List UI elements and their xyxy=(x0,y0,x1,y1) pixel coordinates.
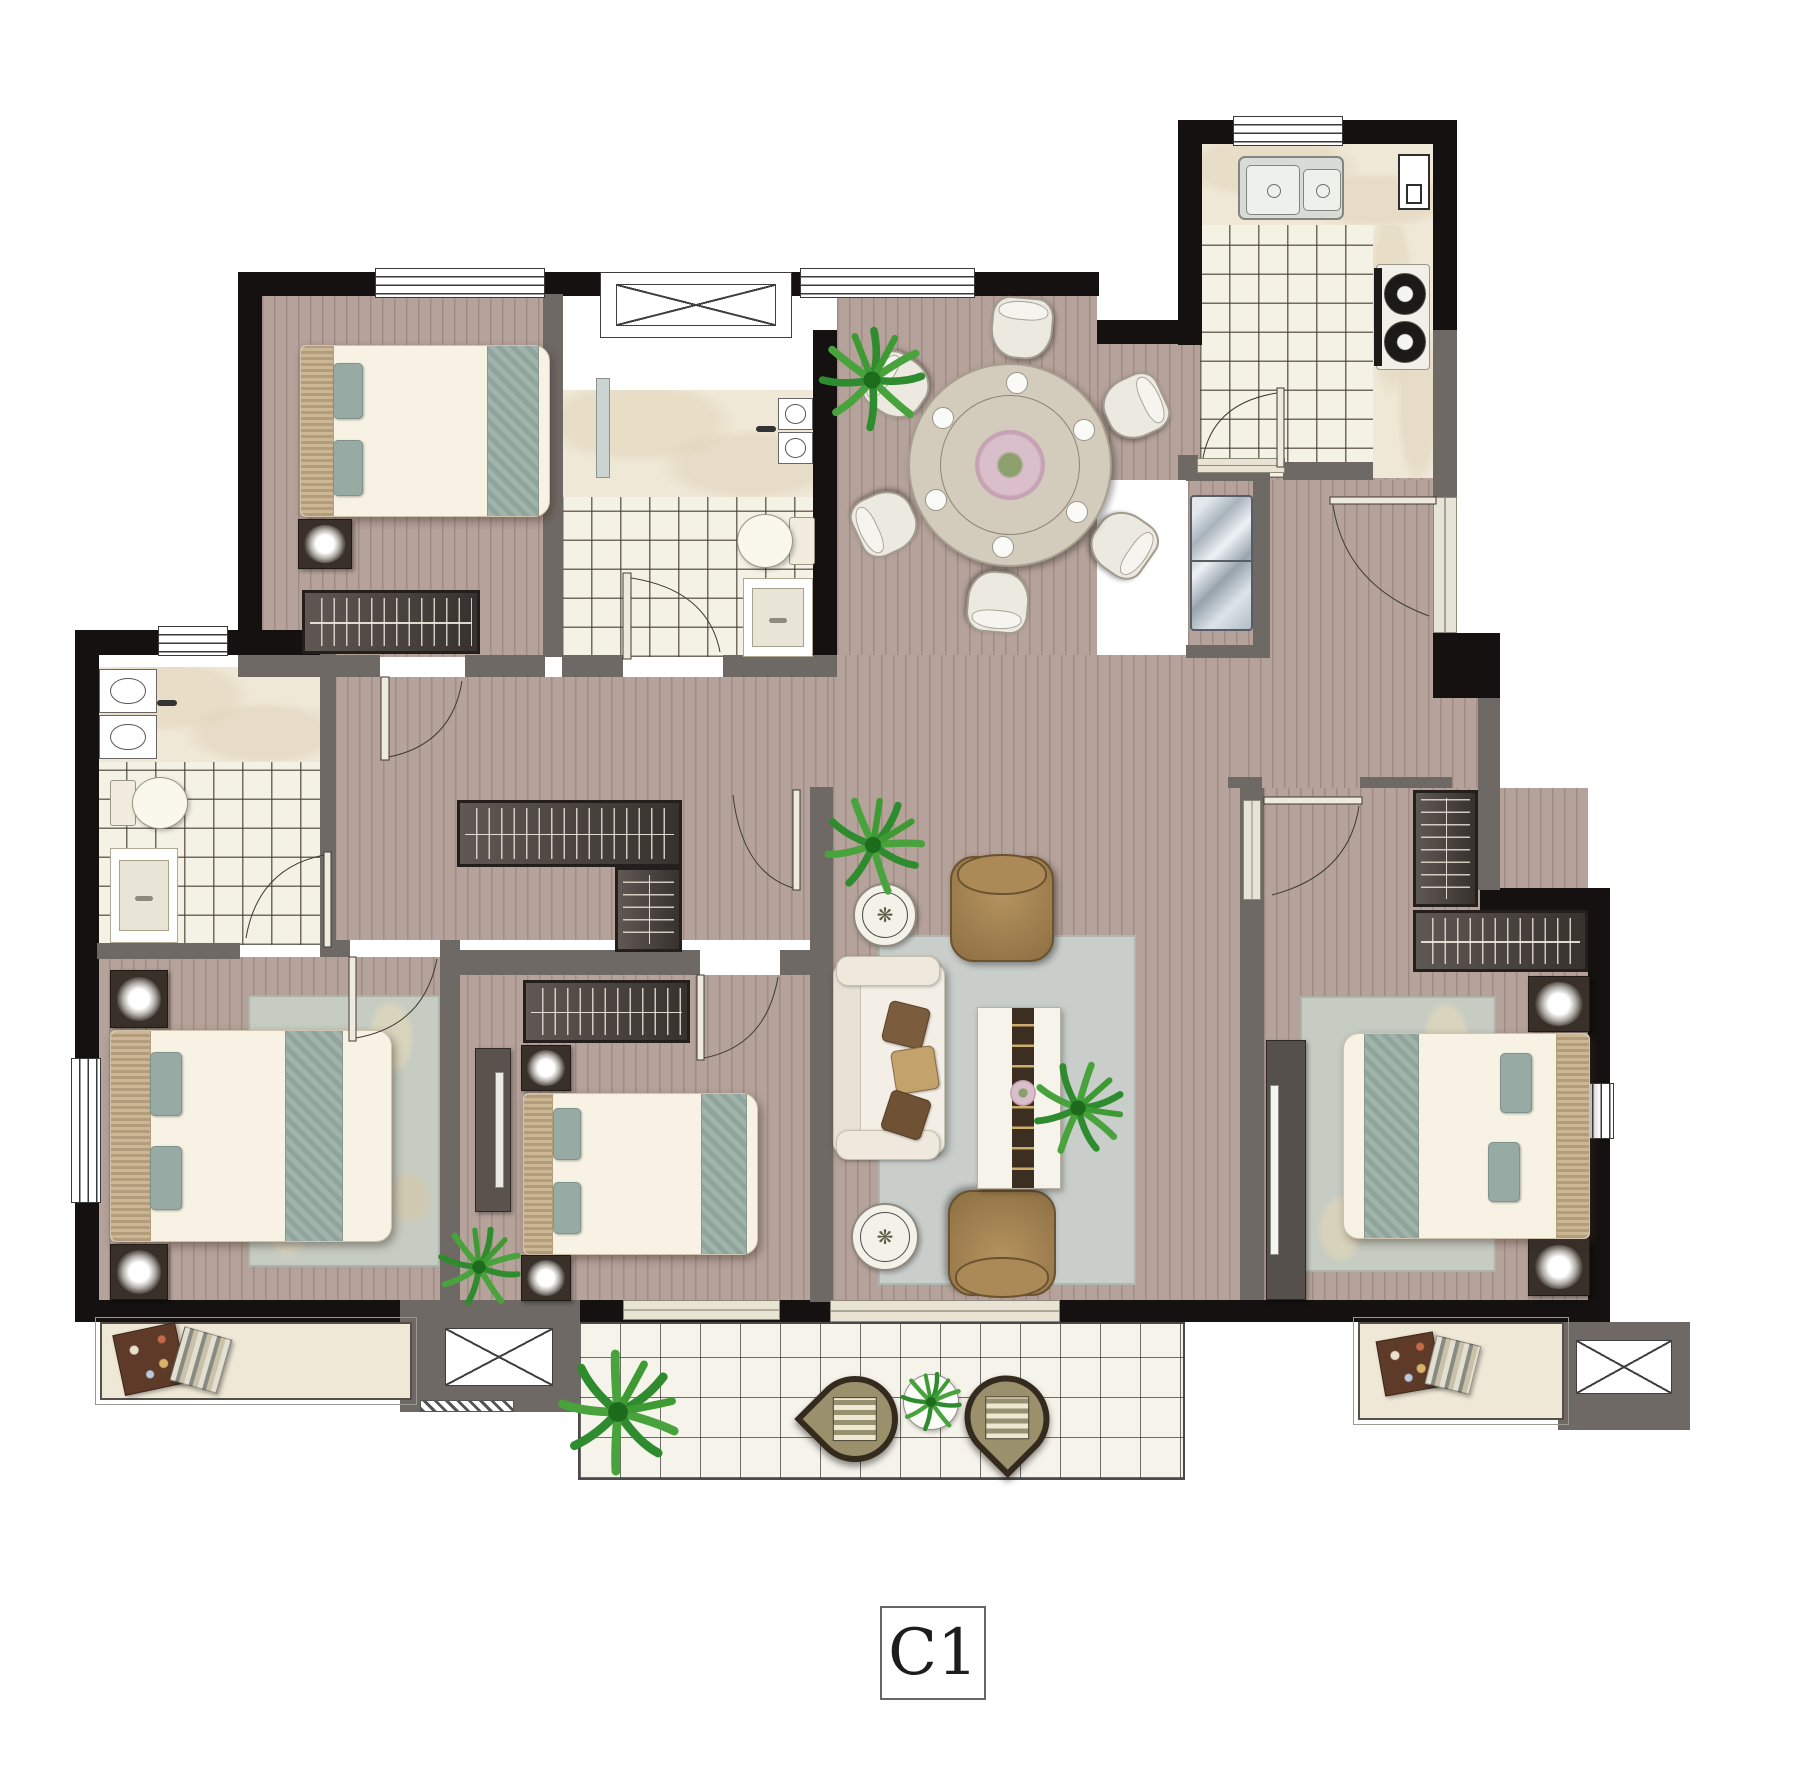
place-setting xyxy=(932,407,954,429)
partition xyxy=(1283,462,1373,480)
washbasin-bath1 xyxy=(743,578,813,657)
side-table xyxy=(851,1203,919,1271)
sofa-pillow xyxy=(890,1045,940,1095)
wall xyxy=(813,330,837,677)
partition xyxy=(455,950,700,975)
wall xyxy=(97,630,160,655)
basin xyxy=(778,398,813,430)
wall xyxy=(238,272,262,657)
pillow xyxy=(553,1108,581,1160)
pillow xyxy=(150,1052,182,1116)
basin xyxy=(778,432,813,464)
bed-runner xyxy=(1364,1034,1420,1238)
nightstand-lamp xyxy=(521,1255,571,1301)
sofa-armrest xyxy=(836,956,940,986)
headboard xyxy=(301,346,334,516)
basin xyxy=(99,669,157,713)
wall xyxy=(1433,140,1457,330)
wardrobe-bedroom-center xyxy=(523,980,690,1043)
window-bedroom1 xyxy=(375,268,545,298)
faucet-icon xyxy=(157,700,177,706)
wardrobe-bedroom-right xyxy=(1413,910,1588,972)
hall-drawer-unit xyxy=(615,867,682,952)
sofa-armrest xyxy=(836,1130,940,1160)
window-master xyxy=(71,1058,101,1203)
nightstand-lamp xyxy=(110,1244,168,1300)
wall xyxy=(1480,888,1610,912)
basin xyxy=(99,715,157,759)
wall xyxy=(1433,633,1500,698)
place-setting xyxy=(925,489,947,511)
chair-pillow xyxy=(985,1396,1029,1439)
coffee-table-flowers xyxy=(1010,1080,1036,1106)
partition xyxy=(238,655,380,677)
nightstand-lamp xyxy=(298,519,352,569)
stove-panel xyxy=(1374,268,1382,366)
headboard xyxy=(1556,1034,1589,1238)
unit-label-box: C1 xyxy=(880,1606,986,1700)
wardrobe-bedroom1 xyxy=(302,590,480,654)
partition xyxy=(1228,777,1262,788)
sink-basin-small xyxy=(1303,169,1341,211)
partition xyxy=(1178,455,1198,480)
chair-pillow xyxy=(833,1397,877,1441)
place-setting xyxy=(992,536,1014,558)
toilet-bowl xyxy=(132,777,188,829)
partition xyxy=(335,940,350,957)
pillow xyxy=(333,440,363,496)
nightstand-lamp xyxy=(110,970,168,1028)
shaft-x-icon xyxy=(1576,1340,1672,1394)
tv-console xyxy=(1266,1040,1306,1300)
partition xyxy=(97,943,240,959)
wall xyxy=(1178,135,1202,345)
fridge-niche-wall xyxy=(1186,645,1270,658)
place-setting xyxy=(1006,372,1028,394)
sink-basin-large xyxy=(1246,165,1300,215)
window-bath-left xyxy=(158,626,228,656)
hall-wardrobe xyxy=(457,800,682,867)
wall xyxy=(545,272,602,296)
place-setting xyxy=(1066,501,1088,523)
partition xyxy=(1433,330,1457,500)
burner xyxy=(1384,321,1426,363)
window-kitchen xyxy=(1233,116,1343,146)
wall xyxy=(75,630,99,1322)
armchair-top xyxy=(950,856,1054,962)
unit-label: C1 xyxy=(888,1616,978,1690)
floor-plan-canvas: C1 xyxy=(0,0,1800,1788)
balcony-plant-pot xyxy=(903,1374,959,1430)
washbasin-bath2 xyxy=(110,848,178,943)
bed-runner xyxy=(701,1094,747,1254)
place-setting xyxy=(1073,419,1095,441)
pillow xyxy=(150,1146,182,1210)
pillow xyxy=(1500,1053,1532,1113)
toilet-bowl xyxy=(737,514,793,568)
armchair-bottom xyxy=(948,1190,1056,1296)
partition xyxy=(320,643,336,957)
shaft-x-icon xyxy=(445,1328,553,1386)
partition xyxy=(1478,698,1500,890)
side-table xyxy=(853,883,917,947)
fridge-niche-wall xyxy=(1253,481,1270,647)
bed-right xyxy=(1343,1033,1590,1239)
partition xyxy=(562,655,623,677)
vent-hatch xyxy=(420,1400,514,1412)
nightstand-lamp xyxy=(1528,976,1590,1032)
partition xyxy=(1360,777,1452,788)
pillow xyxy=(333,363,363,419)
balcony-door-threshold xyxy=(830,1300,1060,1322)
faucet-icon xyxy=(756,426,776,432)
pillow xyxy=(553,1182,581,1234)
headboard xyxy=(111,1031,151,1241)
partition xyxy=(780,950,810,975)
entry-door-jamb xyxy=(1433,497,1457,633)
shower-glass xyxy=(596,378,610,478)
table-centerpiece-flowers xyxy=(975,430,1045,500)
pillow xyxy=(1488,1142,1520,1202)
toilet-bath1 xyxy=(737,511,815,569)
nightstand-lamp xyxy=(1528,1238,1590,1296)
burner xyxy=(1384,273,1426,315)
partition xyxy=(810,787,833,1302)
gas-stove xyxy=(1376,264,1430,370)
partition xyxy=(723,655,837,677)
toilet-bath2 xyxy=(110,775,188,829)
bed-runner xyxy=(487,346,539,516)
partition xyxy=(440,950,460,1302)
partition xyxy=(465,655,545,677)
kitchen-threshold xyxy=(1197,458,1285,473)
wall xyxy=(972,272,1099,296)
kitchen-floor xyxy=(1200,225,1373,478)
dresser-bedroom-center xyxy=(475,1048,511,1212)
kitchen-sink xyxy=(1238,156,1344,220)
kitchen-appliance xyxy=(1398,154,1430,210)
refrigerator xyxy=(1190,495,1253,631)
bedroom-right-jamb xyxy=(1243,800,1261,900)
wardrobe-bedroom-right-vertical xyxy=(1413,790,1478,907)
nightstand-lamp xyxy=(521,1045,571,1091)
shaft-x-icon xyxy=(616,284,776,326)
bedroom-center-sill xyxy=(623,1300,780,1320)
headboard xyxy=(524,1094,553,1254)
window-dining xyxy=(800,268,975,298)
bed-runner xyxy=(285,1031,343,1241)
